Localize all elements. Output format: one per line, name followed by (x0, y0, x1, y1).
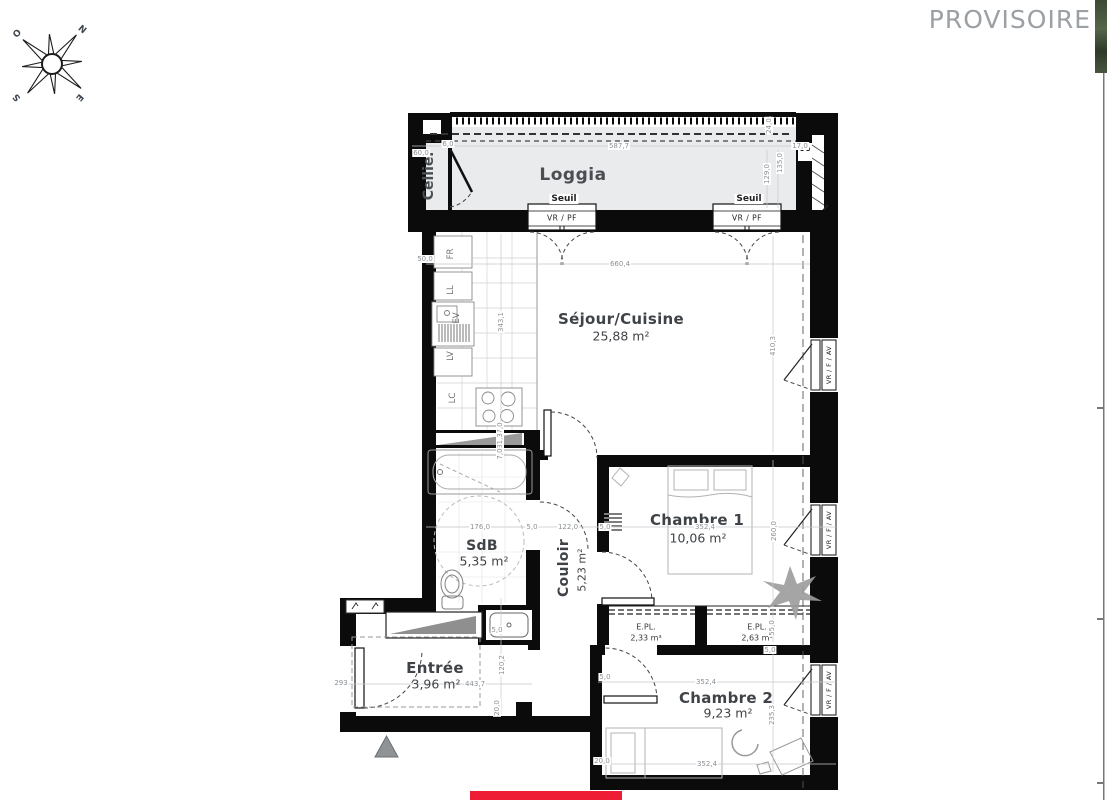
dimension-label: 352,4 (694, 523, 716, 531)
room-label-sejour: Séjour/Cuisine (558, 310, 684, 328)
chambre2-furniture (606, 728, 813, 778)
vr-f-av-label-1: VR / F / AV (825, 346, 833, 384)
vr-f-av-label-2: VR / F / AV (825, 511, 833, 549)
provisoire-watermark: PROVISOIRE (929, 5, 1091, 34)
shaft-wedge-kitchen (436, 433, 524, 445)
red-accent-bar (470, 791, 622, 800)
floor-plan-drawing (0, 0, 1107, 800)
room-area-sdb: 5,35 m² (460, 554, 509, 569)
dimension-label: 235,3 (768, 704, 776, 726)
room-area-chambre1: 10,06 m² (670, 531, 727, 546)
dimension-label: 660,4 (609, 260, 631, 268)
entrance-marker-triangle (375, 736, 398, 757)
room-area-chambre2: 9,23 m² (704, 706, 753, 721)
chair (732, 730, 758, 756)
nightstand (612, 468, 629, 486)
placard-fronts (609, 606, 810, 614)
chambre1-door (597, 552, 654, 605)
seuil-label-2: Seuil (734, 194, 763, 204)
dimension-label: 7,0 (496, 447, 504, 460)
dimension-label: 24,0 (765, 117, 773, 135)
dimension-label: 352,4 (696, 760, 718, 768)
vr-pf-label-1: VR / PF (547, 214, 577, 223)
floor-plan-document: PROVISOIRE O N S E Cellier Loggia Séjour… (0, 0, 1107, 800)
page-border-line (1103, 73, 1105, 800)
room-label-cellier: Cellier (421, 150, 437, 201)
dimension-label: 352,4 (695, 678, 717, 686)
dimension-label: 260,0 (770, 520, 778, 542)
room-label-sdb: SdB (466, 538, 498, 554)
desk (770, 738, 813, 775)
placard-left-label: E.PL. (636, 622, 655, 633)
dimension-label: 122,0 (557, 523, 579, 531)
appliance-label-fr: FR (446, 249, 456, 260)
dimension-label: 55,0 (768, 619, 776, 637)
dimension-label: 176,0 (469, 523, 491, 531)
dimension-label: 17,0 (791, 142, 809, 150)
dimension-label: 20,0 (493, 699, 501, 717)
room-area-sejour: 25,88 m² (593, 329, 650, 344)
border-ticks (1097, 407, 1104, 784)
cooktop (476, 388, 522, 426)
dimension-label: 6,0 (441, 140, 454, 148)
washbasin (486, 610, 532, 640)
dimension-label: 129,0 (763, 163, 771, 185)
loggia-railing (450, 112, 796, 117)
vr-f-av-label-3: VR / F / AV (825, 671, 833, 709)
placard-left-area: 2,33 m³ (630, 633, 661, 644)
room-label-loggia: Loggia (539, 165, 606, 185)
dimension-label: 443,7 (464, 680, 486, 688)
dimension-label: 120,2 (498, 654, 506, 676)
kitchen-appliances (432, 236, 522, 426)
dimension-label: 293 (333, 679, 348, 687)
dimension-label: 587,7 (608, 142, 630, 150)
dimension-label: 5,0 (525, 523, 538, 531)
room-label-couloir: Couloir (556, 539, 572, 597)
dimension-label: 20,0 (593, 757, 611, 765)
appliance-label-lc: LC (448, 393, 458, 404)
sejour-couloir-door (544, 410, 597, 458)
appliance-label-ev: EV (452, 312, 462, 323)
single-bed (606, 728, 722, 778)
dimension-label: 135,0 (776, 152, 784, 174)
room-label-chambre2: Chambre 2 (679, 689, 773, 707)
dimension-label: 5,0 (598, 673, 611, 681)
placard-right-label: E.PL. (747, 622, 766, 633)
dimension-label: 5,0 (763, 646, 776, 654)
vr-pf-label-2: VR / PF (732, 214, 762, 223)
seuil-label-1: Seuil (549, 194, 578, 204)
appliance-label-lv: LV (446, 351, 456, 361)
room-label-entree: Entrée (406, 659, 464, 677)
compass-rose (22, 34, 82, 94)
dimension-label: 5,0 (598, 523, 611, 531)
chambre2-door (604, 645, 657, 703)
dimension-label: 5,0 (490, 626, 503, 634)
room-area-couloir: 5,23 m² (576, 548, 589, 591)
appliance-label-ll: LL (446, 285, 456, 294)
toilet (441, 570, 463, 609)
dimension-label: 60,0 (412, 149, 430, 157)
dimension-label: 410,3 (769, 335, 777, 357)
dimension-label: 50,0 (416, 255, 434, 263)
room-area-entree: 3,96 m² (412, 677, 461, 692)
dimension-label: 343,1 (497, 311, 505, 333)
photo-strip (1095, 0, 1107, 73)
